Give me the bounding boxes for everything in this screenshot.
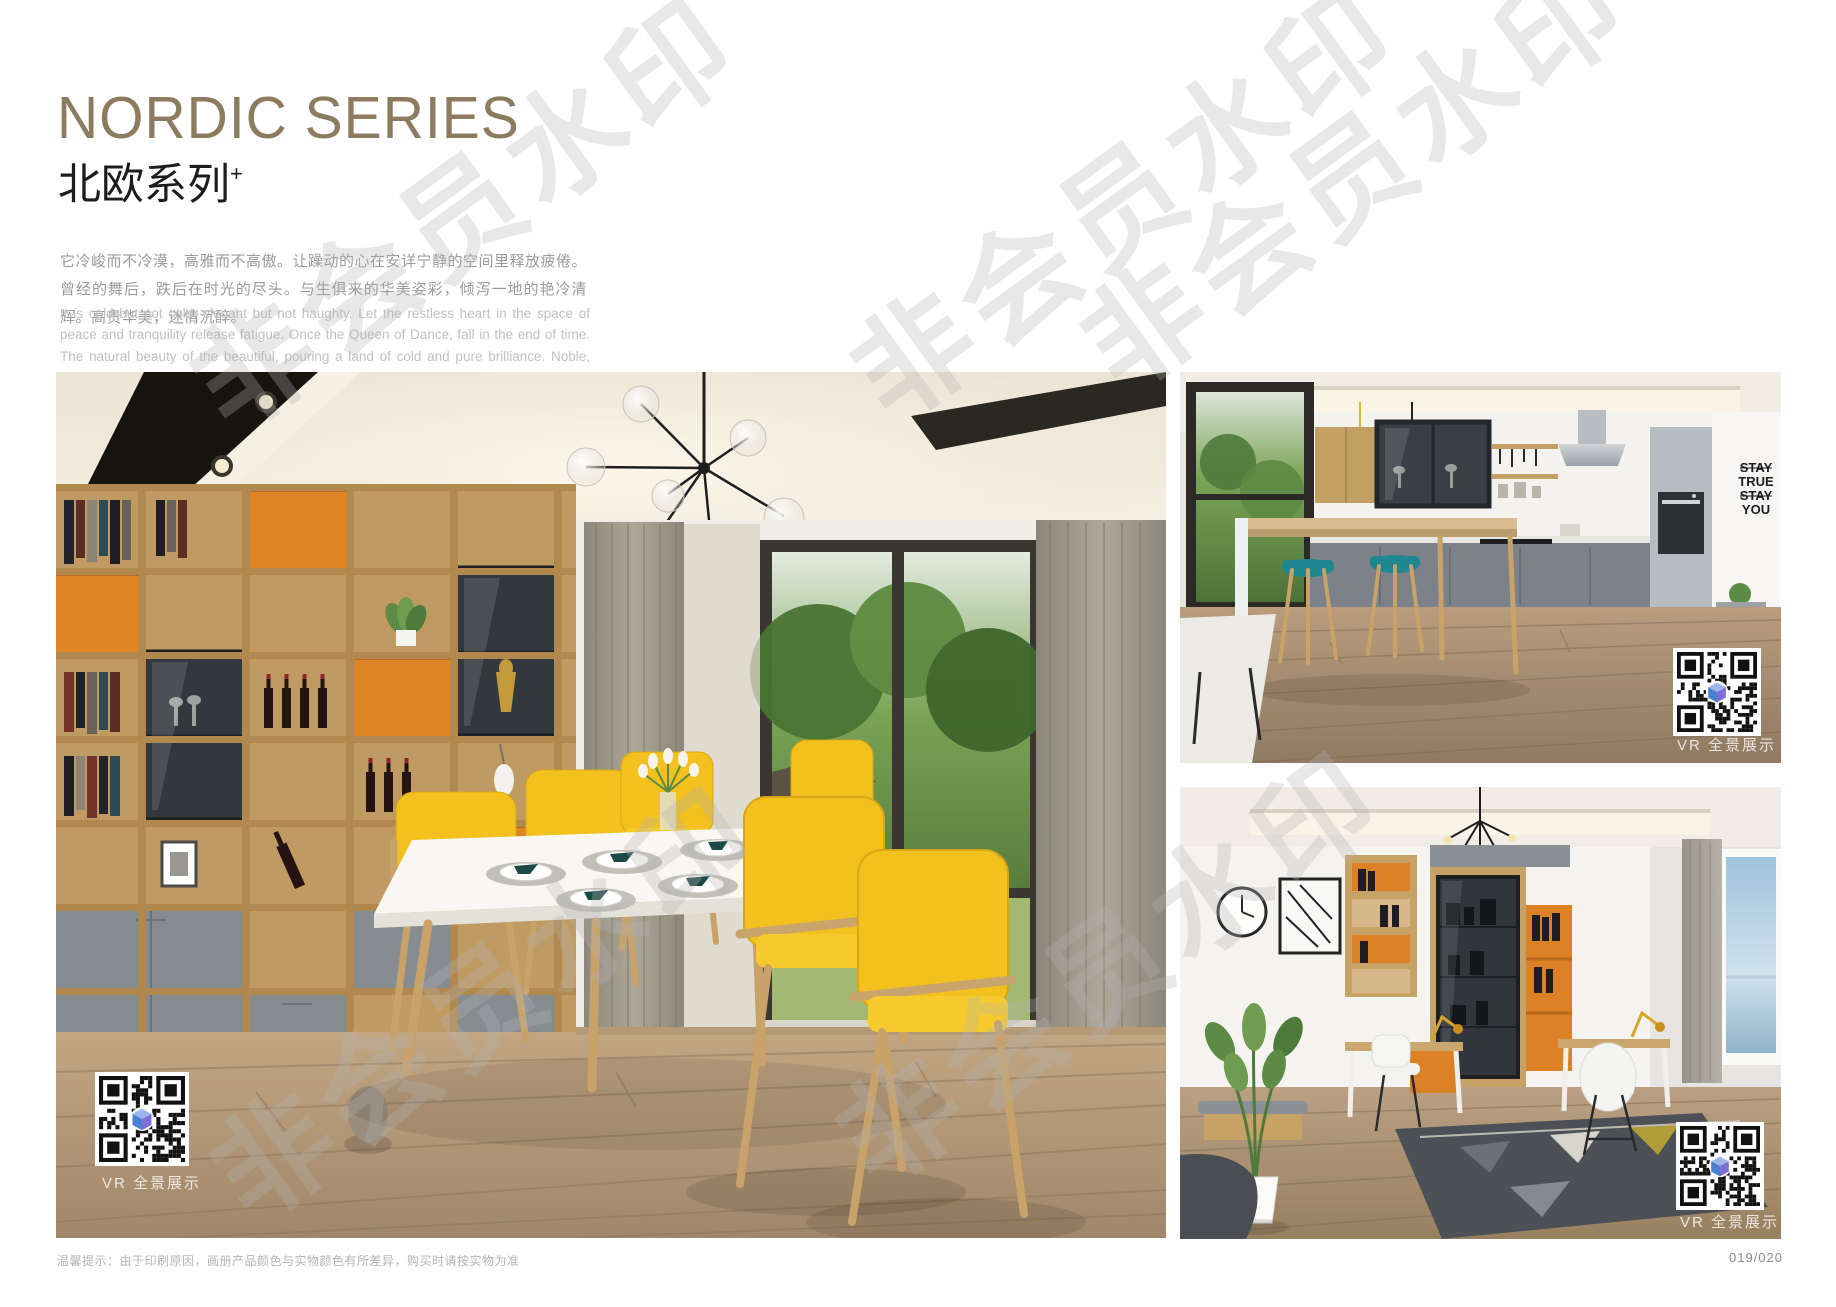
watermark: 非会员水印 xyxy=(1041,0,1659,423)
photo-kitchen: STAY TRUE STAY YOU xyxy=(1180,372,1781,763)
footer-disclaimer: 温馨提示：由于印刷原因，画册产品颜色与实物颜色有所差异，购买时请按实物为准 xyxy=(57,1252,520,1269)
qr-code xyxy=(1676,1122,1764,1210)
vr-panorama-label: VR 全景展示 xyxy=(1680,1211,1779,1232)
photo-study-room: VR 全景展示 xyxy=(1180,787,1781,1239)
dining-room-illustration xyxy=(56,372,1166,1238)
wall-art-line: TRUE xyxy=(1738,474,1774,489)
subtitle-text: 北欧系列 xyxy=(58,161,230,209)
photo-dining-room: VR 全景展示 xyxy=(56,372,1166,1238)
qr-code xyxy=(95,1072,189,1166)
page-number: 019/020 xyxy=(1640,1250,1783,1265)
vr-panorama-label: VR 全景展示 xyxy=(1677,734,1776,755)
wall-art-line: YOU xyxy=(1742,502,1770,517)
qr-code xyxy=(1673,648,1761,736)
page-subtitle-cn: 北欧系列+ xyxy=(58,150,243,212)
page-title: NORDIC SERIES xyxy=(57,84,520,153)
subtitle-superscript: + xyxy=(230,161,243,186)
vr-panorama-label: VR 全景展示 xyxy=(102,1172,201,1193)
